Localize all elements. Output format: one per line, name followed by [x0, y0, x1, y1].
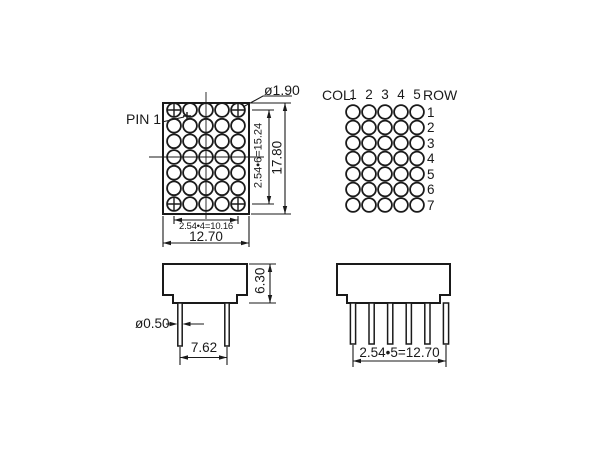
side-view-pin — [225, 303, 229, 346]
overall-height-label: 17.80 — [270, 136, 284, 180]
col-number-4: 4 — [395, 88, 407, 102]
row-number-2: 2 — [427, 121, 435, 135]
dot-grid-pinout — [346, 105, 424, 212]
datasheet-drawing-page: PIN 1 ø1.90 2.54•6=15.24 17.80 2.54•4=10… — [0, 0, 600, 450]
row-number-3: 3 — [427, 137, 435, 151]
row-pitch-label: 2.54•6=15.24 — [254, 114, 265, 198]
row-header-label: ROW — [423, 88, 457, 102]
pin-diameter-label: ø0.50 — [135, 317, 170, 331]
side-view-pin — [178, 303, 182, 346]
bottom-view-body — [337, 264, 450, 303]
side-view-body — [163, 264, 247, 303]
overall-width-label: 12.70 — [176, 230, 236, 244]
col-number-3: 3 — [379, 88, 391, 102]
body-depth-label: 6.30 — [253, 263, 267, 299]
pin1-label: PIN 1 — [126, 112, 161, 126]
pin-spacing-label: 7.62 — [179, 341, 229, 355]
center-lines — [149, 92, 264, 219]
row-number-1: 1 — [427, 106, 435, 120]
col-number-5: 5 — [411, 88, 423, 102]
row-number-7: 7 — [427, 199, 435, 213]
technical-drawing — [0, 0, 600, 450]
col-number-1: 1 — [347, 88, 359, 102]
col-number-2: 2 — [363, 88, 375, 102]
pin-pitch-label: 2.54•5=12.70 — [349, 346, 450, 360]
bottom-view-pins — [350, 303, 448, 344]
row-number-4: 4 — [427, 152, 435, 166]
dot-diameter-label: ø1.90 — [264, 83, 300, 97]
row-number-5: 5 — [427, 168, 435, 182]
row-number-6: 6 — [427, 183, 435, 197]
